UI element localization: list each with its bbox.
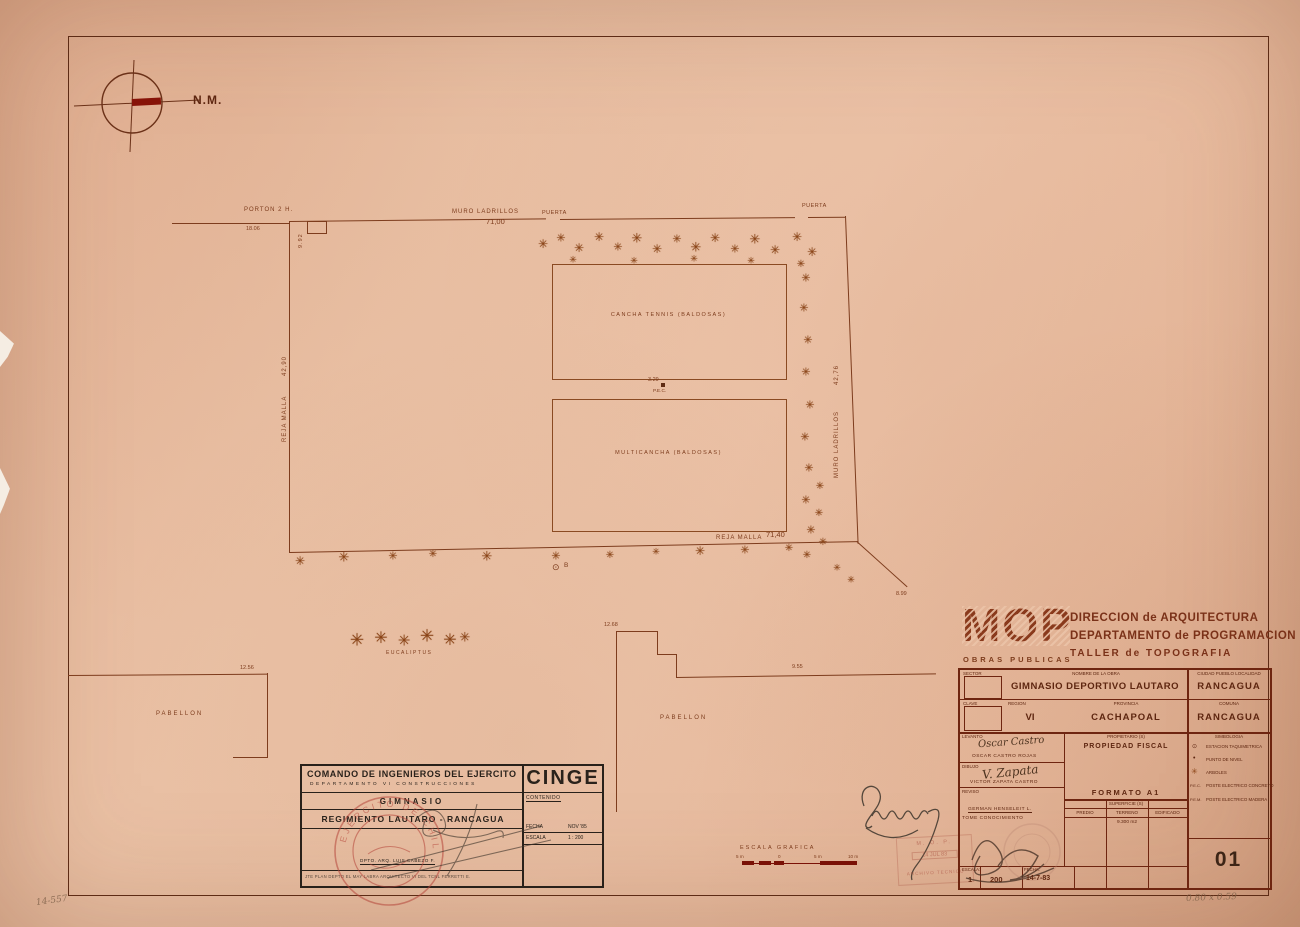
symbol-label: POSTE ELECTRICO CONCRETO bbox=[1206, 783, 1274, 788]
superficie-label: SUPERFICIE (S) bbox=[1066, 801, 1186, 806]
tree-icon: ✳ bbox=[613, 242, 622, 253]
cinge-fecha-value: NOV '85 bbox=[568, 824, 587, 830]
symbol-label: ARBOLES bbox=[1206, 770, 1227, 775]
tree-icon: ✳ bbox=[690, 256, 698, 265]
tree-icon: ✳ bbox=[574, 242, 584, 254]
tree-icon: ✳ bbox=[710, 232, 720, 244]
tree-icon: ✳ bbox=[652, 243, 662, 255]
tree-icon: ✳ bbox=[801, 273, 810, 284]
scale-tick: 5 m bbox=[736, 854, 744, 859]
tree-icon: ✳ bbox=[632, 233, 643, 246]
tree-icon: ✳ bbox=[443, 632, 456, 648]
tree-icon: ✳ bbox=[295, 555, 305, 567]
escala-den: 200 bbox=[990, 875, 1003, 884]
tree-icon: ✳ bbox=[730, 244, 739, 255]
tree-icon: ✳ bbox=[460, 632, 471, 645]
symbol-label: POSTE ELECTRICO MADERA bbox=[1206, 797, 1267, 802]
mop-obras: OBRAS PUBLICAS bbox=[963, 655, 1073, 664]
archive-stamp-date: 14 JUL 83 bbox=[912, 850, 958, 860]
mop-logo-hatch bbox=[962, 606, 1070, 646]
obra-name: GIMNASIO DEPORTIVO LAUTARO bbox=[1004, 681, 1186, 692]
formato-value: FORMATO A1 bbox=[1066, 788, 1186, 797]
sup-col-terreno: TERRENO bbox=[1106, 810, 1148, 815]
tree-icon: ✳ bbox=[804, 463, 813, 474]
tree-icon: ✳ bbox=[695, 545, 705, 557]
hdr-clave: CLAVE bbox=[963, 701, 977, 706]
reviso-name: GERMAN HENSELEIT L. bbox=[968, 807, 1032, 813]
mop-logo: MOP bbox=[962, 598, 1073, 652]
ciudad-value: RANCAGUA bbox=[1189, 681, 1269, 692]
tree-icon: ✳ bbox=[816, 482, 824, 492]
tree-icon: ✳ bbox=[482, 551, 493, 564]
scale-bar-block bbox=[774, 861, 784, 865]
tree-icon: ✳ bbox=[750, 234, 761, 247]
fecha-label: FECHA: bbox=[1024, 867, 1040, 872]
graphic-scale: ESCALA GRAFICA 5 m 0 5 m 10 m bbox=[722, 845, 882, 871]
comuna-value: RANCAGUA bbox=[1189, 712, 1269, 723]
hdr-region: REGION bbox=[1008, 701, 1026, 706]
scanned-drawing-sheet: N.M. PORTON 2 H. 18.06 9.92 MURO LADRILL… bbox=[0, 0, 1300, 927]
tree-icon: ✳ bbox=[672, 234, 681, 245]
cinge-title: COMANDO DE INGENIEROS DEL EJERCITO bbox=[307, 769, 517, 779]
mop-line1: DIRECCION de ARQUITECTURA bbox=[1070, 612, 1258, 624]
tree-icon: ✳ bbox=[551, 551, 560, 562]
tb-line bbox=[1064, 808, 1187, 809]
sector-box bbox=[964, 676, 1002, 699]
tree-icon: ✳ bbox=[556, 233, 565, 244]
sheet-number: 01 bbox=[1187, 848, 1270, 872]
tree-icon: ✳ bbox=[792, 231, 802, 243]
symbol-glyph: P.E.M. bbox=[1190, 797, 1202, 802]
tree-icon: ✳ bbox=[594, 231, 604, 243]
tree-icon: ✳ bbox=[803, 551, 811, 561]
scale-bar-block bbox=[820, 861, 857, 865]
sup-terreno-value: 9.300 m2 bbox=[1106, 820, 1148, 825]
tree-icon: ✳ bbox=[350, 633, 364, 650]
tree-icon: ✳ bbox=[398, 634, 411, 649]
approval-scrawl bbox=[355, 798, 565, 888]
tb-line bbox=[1064, 817, 1187, 818]
tb-line bbox=[1187, 838, 1270, 839]
dibujo-label: DIBUJO bbox=[962, 764, 979, 769]
simbologia-label: SIMBOLOGIA bbox=[1189, 734, 1269, 739]
fecha-value: 14-7-83 bbox=[1026, 875, 1050, 882]
tree-icon: ✳ bbox=[806, 525, 815, 536]
region-value: VI bbox=[1000, 712, 1060, 723]
propietario-label: PROPIETARIO (S) bbox=[1066, 734, 1186, 739]
tree-icon: ✳ bbox=[339, 552, 350, 565]
tree-icon: ✳ bbox=[630, 258, 638, 267]
graphic-scale-label: ESCALA GRAFICA bbox=[740, 845, 815, 851]
scale-bar-block bbox=[742, 861, 754, 865]
scale-tick: 10 m bbox=[848, 854, 858, 859]
tree-icon: ✳ bbox=[606, 551, 614, 561]
hdr-provincia: PROVINCIA bbox=[1066, 701, 1186, 706]
tree-icon: ✳ bbox=[797, 260, 805, 270]
tb-line bbox=[1074, 866, 1075, 888]
mop-line2: DEPARTAMENTO de PROGRAMACION bbox=[1070, 630, 1296, 642]
levanto-name: OSCAR CASTRO ROJAS bbox=[972, 754, 1037, 759]
mop-line3: TALLER de TOPOGRAFIA bbox=[1070, 648, 1232, 659]
tree-icon: ✳ bbox=[747, 258, 755, 267]
tree-icon: ✳ bbox=[833, 565, 841, 574]
symbol-glyph: • bbox=[1193, 755, 1195, 762]
tree-icon: ✳ bbox=[801, 367, 810, 378]
levanto-signature: Oscar Castro bbox=[978, 735, 1045, 751]
tree-icon: ✳ bbox=[691, 242, 702, 255]
cinge-subtitle: DEPARTAMENTO VI CONSTRUCCIONES bbox=[310, 782, 477, 787]
tree-icon: ✳ bbox=[374, 630, 387, 646]
tree-icon: ✳ bbox=[538, 238, 548, 250]
tree-icon: ✳ bbox=[799, 303, 808, 314]
symbol-glyph: ⊙ bbox=[1192, 743, 1197, 750]
tree-icon: ✳ bbox=[388, 551, 397, 562]
sup-col-predio: PREDIO bbox=[1064, 810, 1106, 815]
tree-icon: ✳ bbox=[805, 400, 814, 411]
tree-icon: ✳ bbox=[847, 577, 855, 586]
tree-icon: ✳ bbox=[740, 545, 749, 556]
cinge-escala-value: 1 : 200 bbox=[568, 835, 583, 841]
sup-col-edificado: EDIFICADO bbox=[1148, 810, 1187, 815]
symbol-label: PUNTO DE NIVEL bbox=[1206, 757, 1243, 762]
scale-tick: 0 bbox=[778, 854, 781, 859]
symbol-label: ESTACION TAQUIMETRICA bbox=[1206, 744, 1262, 749]
provincia-value: CACHAPOAL bbox=[1066, 712, 1186, 723]
note-bottom-right: 0.80 x 0.59 bbox=[1186, 892, 1237, 904]
hdr-ciudad: CIUDAD PUEBLO LOCALIDAD bbox=[1189, 671, 1269, 676]
tree-icon: ✳ bbox=[803, 335, 812, 346]
scale-bar-block bbox=[759, 861, 771, 865]
cinge-line bbox=[522, 792, 602, 793]
symbol-glyph: ✳ bbox=[1191, 767, 1198, 776]
hdr-comuna: COMUNA bbox=[1189, 701, 1269, 706]
cinge-logo: CINGE bbox=[524, 767, 602, 790]
scale-tick: 5 m bbox=[814, 854, 822, 859]
propietario-value: PROPIEDAD FISCAL bbox=[1066, 743, 1186, 750]
clave-box bbox=[964, 706, 1002, 731]
hdr-sector: SECTOR bbox=[963, 671, 982, 676]
tree-icon: ✳ bbox=[569, 257, 577, 266]
tree-icon: ✳ bbox=[429, 550, 437, 560]
tree-icon: ✳ bbox=[801, 495, 810, 506]
tree-icon: ✳ bbox=[819, 538, 827, 548]
title-block: SECTOR NOMBRE DE LA OBRA CIUDAD PUEBLO L… bbox=[958, 668, 1272, 890]
tree-icon: ✳ bbox=[815, 509, 823, 519]
mop-header: MOP OBRAS PUBLICAS DIRECCION de ARQUITEC… bbox=[958, 604, 1268, 668]
tree-icon: ✳ bbox=[770, 244, 780, 256]
tree-icon: ✳ bbox=[800, 432, 809, 443]
tree-icon: ✳ bbox=[785, 544, 793, 554]
tree-icon: ✳ bbox=[807, 246, 817, 258]
escala-num: 1 bbox=[968, 875, 972, 884]
hdr-nombre: NOMBRE DE LA OBRA bbox=[1006, 671, 1186, 676]
reviso-label: REVISO bbox=[962, 789, 979, 794]
dibujo-signature: V. Zapata bbox=[981, 762, 1039, 782]
tree-icon: ✳ bbox=[420, 629, 434, 646]
dibujo-name: VICTOR ZAPATA CASTRO bbox=[970, 780, 1038, 785]
escala-label: ESCALA: bbox=[962, 867, 980, 872]
tree-icon: ✳ bbox=[652, 549, 660, 558]
symbol-glyph: P.E.C. bbox=[1190, 783, 1201, 788]
